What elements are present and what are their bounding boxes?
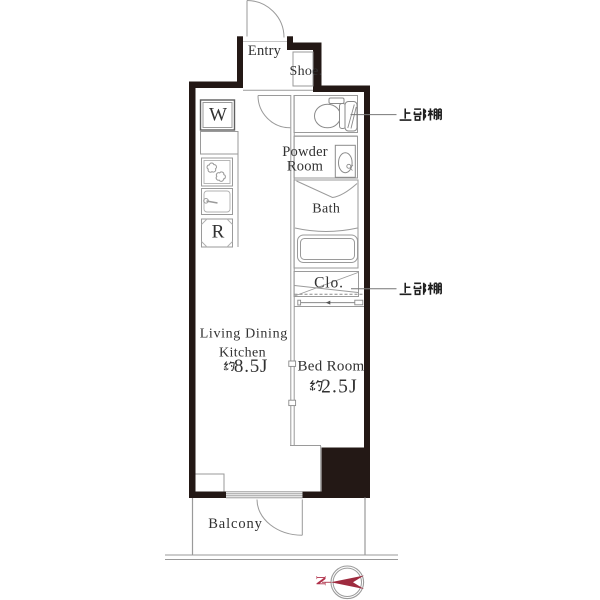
svg-text:8.5J: 8.5J [234,356,268,377]
svg-text:Room: Room [287,159,324,175]
svg-text:Balcony: Balcony [208,516,263,532]
svg-text:Living Dining: Living Dining [200,327,288,342]
svg-text:Bed Room: Bed Room [298,359,365,375]
svg-text:N: N [314,576,329,586]
svg-text:Clo.: Clo. [314,275,344,292]
svg-text:R: R [212,222,225,243]
svg-text:2.5J: 2.5J [321,376,358,397]
svg-text:W: W [209,105,227,126]
svg-text:Bath: Bath [312,202,340,217]
svg-text:Entry: Entry [248,43,282,59]
svg-text:Shoe.: Shoe. [290,64,323,79]
